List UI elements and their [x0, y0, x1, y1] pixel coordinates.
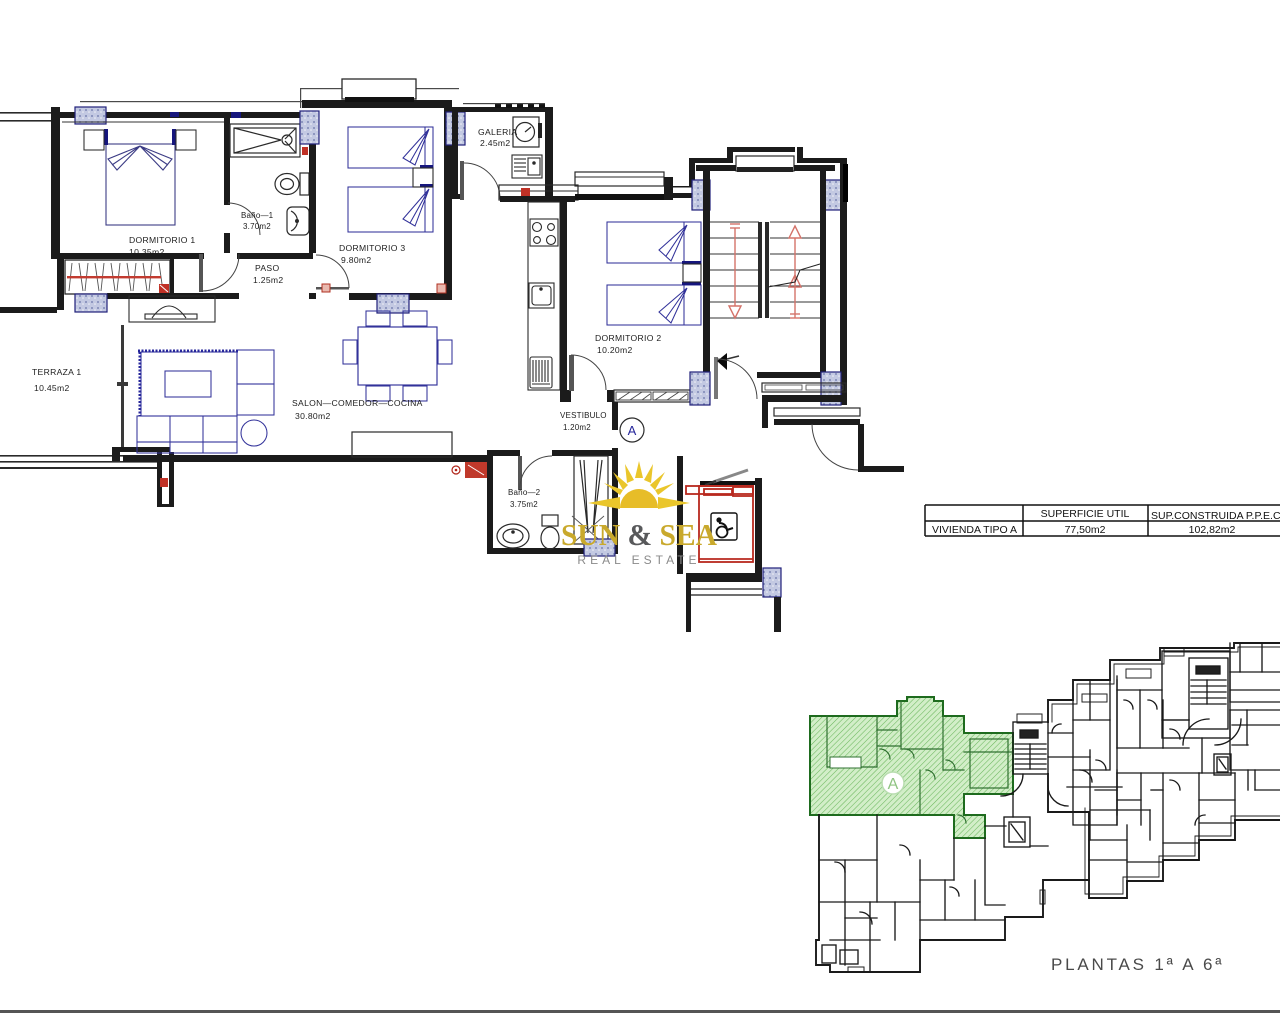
svg-text:30.80m2: 30.80m2 [295, 411, 331, 421]
svg-text:A: A [888, 776, 899, 793]
svg-text:3.70m2: 3.70m2 [243, 222, 271, 231]
svg-text:1.25m2: 1.25m2 [253, 275, 283, 285]
svg-text:2.45m2: 2.45m2 [480, 138, 510, 148]
svg-text:A: A [628, 423, 637, 438]
svg-text:REAL ESTATE: REAL ESTATE [577, 553, 700, 567]
svg-text:VIVIENDA TIPO A: VIVIENDA TIPO A [932, 524, 1017, 536]
svg-text:SALON—COMEDOR—COCINA: SALON—COMEDOR—COCINA [292, 398, 423, 408]
svg-text:9.80m2: 9.80m2 [341, 255, 371, 265]
svg-text:DORMITORIO 2: DORMITORIO 2 [595, 333, 661, 343]
svg-text:SUN & SEA: SUN & SEA [561, 517, 718, 552]
svg-text:SUP.CONSTRUIDA P.P.E.C.: SUP.CONSTRUIDA P.P.E.C. [1151, 510, 1280, 522]
svg-text:DORMITORIO 3: DORMITORIO 3 [339, 243, 405, 253]
svg-text:TERRAZA 1: TERRAZA 1 [32, 367, 82, 377]
svg-text:PLANTAS 1ª A 6ª: PLANTAS 1ª A 6ª [1051, 955, 1224, 974]
svg-text:Baño—1: Baño—1 [241, 211, 274, 220]
svg-text:SUPERFICIE UTIL: SUPERFICIE UTIL [1041, 508, 1130, 520]
svg-text:GALERIA: GALERIA [478, 127, 517, 137]
svg-text:10.35m2: 10.35m2 [129, 247, 165, 257]
svg-text:102,82m2: 102,82m2 [1189, 524, 1236, 536]
svg-text:VESTIBULO: VESTIBULO [560, 411, 607, 420]
svg-text:Baño—2: Baño—2 [508, 488, 541, 497]
svg-text:PASO: PASO [255, 263, 279, 273]
svg-text:10.20m2: 10.20m2 [597, 345, 633, 355]
svg-text:3.75m2: 3.75m2 [510, 500, 538, 509]
svg-text:1.20m2: 1.20m2 [563, 423, 591, 432]
svg-text:DORMITORIO 1: DORMITORIO 1 [129, 235, 195, 245]
svg-text:10.45m2: 10.45m2 [34, 383, 70, 393]
svg-text:77,50m2: 77,50m2 [1065, 524, 1106, 536]
